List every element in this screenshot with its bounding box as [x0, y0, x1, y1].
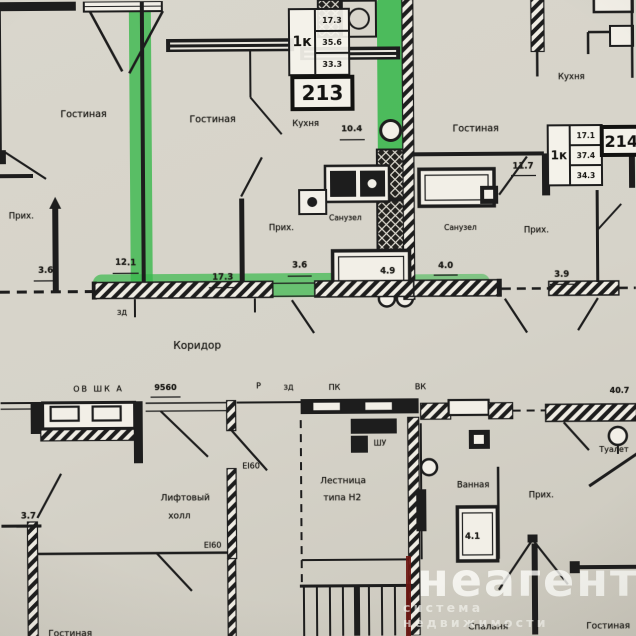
dimension-label: 4.9 [380, 267, 395, 276]
watermark-brand: неагент [417, 553, 636, 607]
room-label-hall: Прих. [529, 491, 554, 500]
window-blocks [166, 37, 400, 61]
door-mark: ЗД [283, 385, 293, 392]
shaft-marks-row: ОВ ШК А [73, 385, 124, 393]
room-label-hall: Прих. [269, 224, 294, 233]
dimension-label: 4.1 [465, 533, 480, 542]
dimension-label: 17.3 [212, 273, 233, 282]
area-value: 17.3 [316, 10, 348, 30]
room-label-toilet: Туалет [599, 446, 628, 454]
kitchen-counter-icon [299, 166, 389, 215]
elevator-block [1, 401, 227, 465]
dimension-label: 4.0 [438, 262, 453, 271]
fire-hydrant-mark: ПК [329, 384, 341, 392]
room-label-bathroom: Ванная [457, 482, 490, 491]
apartment-type: 1к [549, 126, 571, 184]
apartment-number-214: 214 [600, 125, 636, 157]
dimension-label: 3.6 [292, 262, 307, 271]
dimension-label: 11.7 [512, 162, 533, 171]
room-label-living: Гостиная [48, 630, 92, 636]
room-label-kitchen: Кухня [558, 73, 585, 82]
apartment-number-213: 213 [290, 75, 354, 111]
room-label-lift-hall: Лифтовый [161, 494, 210, 503]
staircase-icon [300, 559, 417, 636]
area-value: 35.6 [316, 30, 348, 52]
dimension-label: 3.7 [21, 513, 36, 522]
watermark-tagline: система недвижимости [403, 600, 636, 630]
room-label-bathroom: Санузел [329, 214, 362, 222]
dimension-label: 12.1 [115, 259, 136, 268]
room-label-living: Гостиная [60, 110, 106, 120]
floor-plan-drawing: Гостиная Прих. 3.6 12.1 Гостиная Кухня 1… [0, 0, 636, 636]
dimension-label: 9560 [154, 384, 176, 392]
dimension-label: 40.7 [610, 387, 630, 395]
area-value: 37.4 [571, 144, 601, 164]
corridor-door-swings [135, 296, 598, 335]
room-label-hall: Прих. [524, 226, 549, 235]
area-value: 33.3 [316, 52, 348, 74]
shaft-mark: ВК [415, 383, 426, 391]
dimension-label: 3.9 [554, 271, 569, 280]
room-label-hall: Прих. [9, 213, 34, 222]
dimension-label: 10.4 [341, 125, 362, 134]
floor-plan-photo: Гостиная Прих. 3.6 12.1 Гостиная Кухня 1… [0, 0, 636, 636]
room-label-kitchen: Кухня [292, 120, 319, 129]
area-value: 17.1 [571, 126, 601, 144]
area-value: 34.3 [571, 164, 601, 184]
room-label-corridor: Коридор [173, 340, 221, 351]
room-label-stairs: типа Н2 [323, 494, 361, 503]
apartment-214-area-stamp: 1к 17.1 37.4 34.3 [547, 124, 603, 186]
wall-mark: Р [256, 382, 261, 390]
door-mark: ЗД [117, 310, 127, 317]
room-label-shu: ШУ [374, 440, 387, 448]
fire-door-mark: EI60 [204, 542, 222, 550]
fire-door-mark: EI60 [242, 462, 260, 470]
room-label-bathroom: Санузел [444, 224, 477, 232]
dimension-label: 3.6 [38, 267, 53, 276]
apartment-type: 1к [290, 10, 316, 74]
apartment-213-area-stamp: 1к 17.3 35.6 33.3 [288, 8, 350, 76]
room-label-lift-hall: холл [168, 512, 190, 521]
room-label-living: Гостиная [189, 115, 235, 125]
room-label-living: Гостиная [453, 124, 499, 134]
room-label-stairs: Лестница [320, 477, 366, 486]
